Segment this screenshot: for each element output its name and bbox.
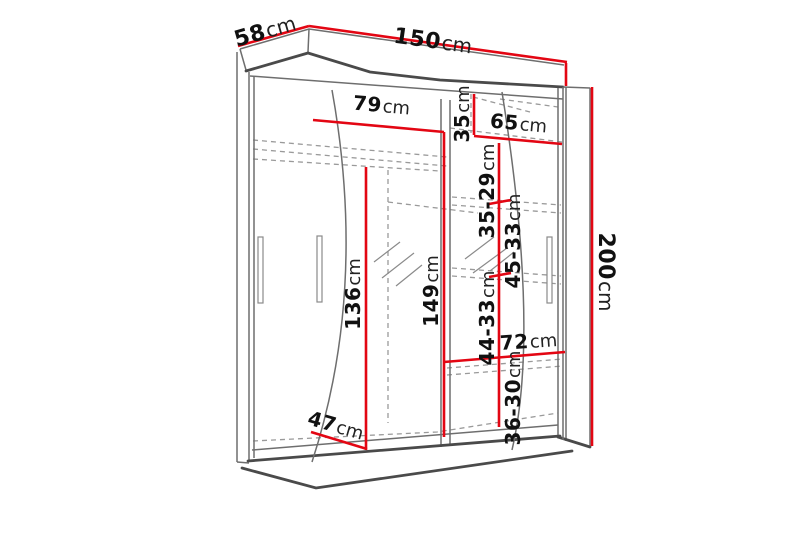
dim-label-width: 150cm [392,24,474,60]
dim-label-35: 35cm [450,85,474,142]
door-handle-right [547,237,552,303]
door-handle-left [258,237,263,303]
door-handle-left-inner [317,236,322,302]
dim-label-136: 136cm [341,258,365,330]
dim-label-height: 200cm [593,233,618,312]
dimension-lines [238,26,592,450]
dim-label-149: 149cm [419,255,443,327]
dim-label-45-33: 45-33cm [501,194,525,289]
cabinet-structure [237,29,590,488]
dim-label-35-29: 35-29cm [475,144,499,239]
right-panel-top [563,87,590,88]
doors-top-edge [250,76,563,99]
dim-line-79 [313,120,444,132]
dim-label-65: 65cm [489,109,548,138]
dim-label-36-30: 36-30cm [501,351,525,446]
dim-label-44-33: 44-33cm [475,271,499,366]
dim-label-depth: 58cm [231,11,299,52]
diagram-canvas: 58cm 150cm 200cm 79cm 35cm 65cm 35-29cm … [0,0,800,533]
dimension-labels: 58cm 150cm 200cm 79cm 35cm 65cm 35-29cm … [231,11,618,445]
dim-label-79: 79cm [352,91,411,120]
wardrobe-dimension-diagram: 58cm 150cm 200cm 79cm 35cm 65cm 35-29cm … [0,0,800,533]
